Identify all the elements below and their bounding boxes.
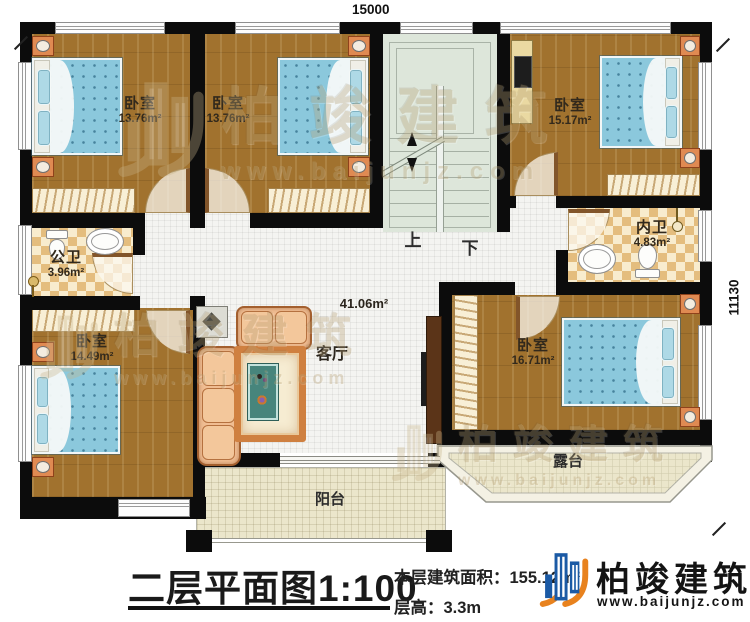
wall-segment	[497, 22, 510, 232]
wall-segment	[560, 196, 712, 208]
window	[400, 22, 473, 34]
window	[55, 22, 165, 34]
closet-bedroom-tm	[268, 188, 370, 213]
stairwell	[383, 34, 497, 232]
room-label-terrace: 露台	[553, 450, 583, 471]
title-block: 二层平面图1:100 本层建筑面积：155.12m² 层高：3.3m 柏竣建筑 …	[0, 548, 750, 622]
window	[118, 499, 190, 517]
room-label-private-bath: 内卫 4.83m²	[634, 220, 670, 250]
nightstand	[32, 457, 54, 477]
room-label-public-bath: 公卫 3.96m²	[48, 250, 84, 280]
dimension-top: 15000	[352, 2, 390, 17]
nightstand	[680, 407, 700, 427]
coffee-table	[248, 364, 278, 420]
balcony-rail	[206, 538, 436, 543]
plan-title: 二层平面图1:100	[128, 558, 418, 612]
stairs-down-label: 下	[462, 234, 479, 259]
window	[698, 210, 712, 262]
toilet	[46, 230, 68, 239]
wall-segment	[510, 196, 516, 208]
pull-lamp-line	[676, 208, 678, 222]
wall-segment	[556, 196, 568, 208]
brand-website: www.baijunjz.com	[597, 594, 746, 609]
room-label-bedroom-br: 卧室 16.71m²	[512, 338, 555, 368]
dimension-tick	[712, 522, 726, 536]
wall-segment	[32, 213, 143, 228]
wall-segment	[370, 22, 383, 228]
stair-divider	[436, 86, 444, 232]
bed	[32, 366, 120, 454]
stairs-up-label: 上	[405, 226, 422, 251]
wall-segment	[133, 213, 145, 255]
window	[698, 325, 712, 420]
nightstand	[680, 294, 700, 314]
nightstand	[32, 342, 54, 362]
floor-drain-stem	[32, 285, 34, 297]
closet-bedroom-tr	[607, 174, 700, 196]
window	[18, 62, 32, 150]
stair-arrow-down	[407, 158, 417, 172]
sliding-door	[280, 456, 440, 464]
wall-segment	[190, 22, 205, 228]
room-label-balcony: 阳台	[315, 488, 345, 509]
toilet	[635, 269, 660, 278]
stair-landing	[396, 48, 474, 134]
tv-cabinet-living	[426, 316, 442, 444]
floorplan-canvas: 卧室 13.76m² 卧室 13.76m² 卧室 15.17m² 公卫 3.96…	[0, 0, 750, 622]
tv-bedroom-tr	[514, 56, 532, 88]
nightstand	[680, 36, 700, 56]
bed	[278, 58, 368, 155]
nightstand	[348, 36, 370, 56]
pull-lamp	[672, 221, 683, 232]
nightstand	[680, 148, 700, 168]
closet-bedroom-br	[454, 295, 478, 430]
title-underline	[128, 606, 390, 610]
closet-bedroom-bl	[32, 308, 135, 332]
closet-bedroom-tl	[32, 188, 135, 213]
brand-logo-icon	[538, 548, 590, 608]
side-table-lamp	[196, 306, 228, 338]
bed	[562, 318, 680, 406]
room-label-living: 客厅	[316, 340, 348, 364]
stair-arrow-up	[407, 132, 417, 146]
wall-segment	[437, 430, 712, 445]
room-label-bedroom-tr: 卧室 15.17m²	[549, 98, 592, 128]
wall-segment	[20, 296, 140, 310]
window	[698, 62, 712, 150]
floor-height-text: 层高：3.3m	[394, 594, 481, 618]
dimension-right: 11130	[727, 279, 742, 315]
bed	[600, 56, 682, 148]
window	[18, 365, 32, 462]
nightstand	[348, 157, 370, 177]
nightstand	[32, 36, 54, 56]
dimension-tick	[716, 38, 730, 52]
room-label-bedroom-bl: 卧室 14.49m²	[71, 334, 114, 364]
room-label-bedroom-tm: 卧室 13.76m²	[207, 96, 250, 126]
bed	[32, 58, 122, 155]
window	[235, 22, 340, 34]
wall-segment	[250, 213, 370, 228]
tv-living	[421, 352, 426, 406]
window	[500, 22, 671, 34]
living-area-value: 41.06m²	[340, 296, 388, 311]
sink	[86, 228, 124, 255]
sofa-top-row	[236, 306, 312, 350]
nightstand	[32, 157, 54, 177]
room-label-bedroom-tl: 卧室 13.76m²	[119, 96, 162, 126]
sink	[578, 244, 616, 274]
